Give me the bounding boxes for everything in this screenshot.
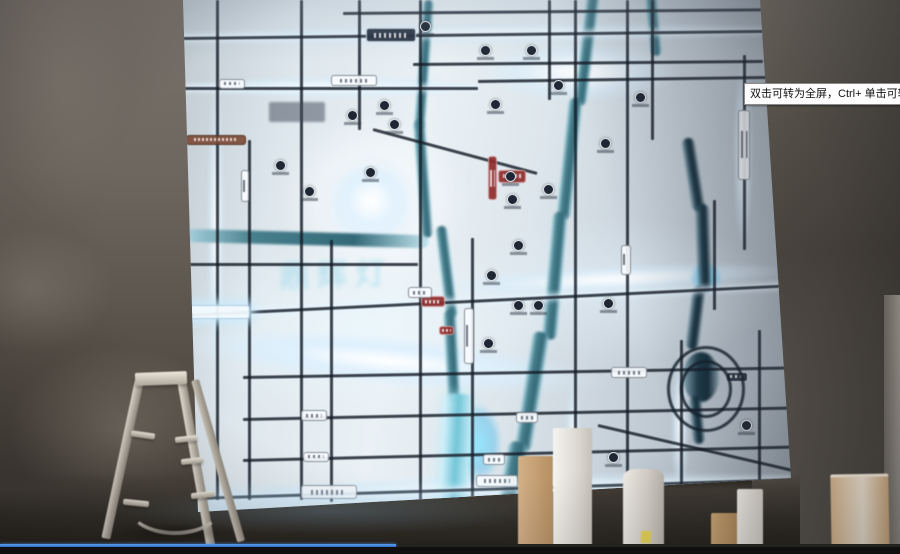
map-poi-marker bbox=[635, 92, 646, 103]
map-poi-marker bbox=[389, 119, 400, 130]
map-poi-marker bbox=[379, 100, 390, 111]
cardboard-box bbox=[518, 456, 553, 554]
map-label-badge bbox=[439, 326, 454, 335]
map-road bbox=[471, 238, 474, 506]
map-poi-marker bbox=[275, 160, 286, 171]
map-features bbox=[183, 0, 791, 515]
map-poi-marker bbox=[507, 194, 518, 205]
map-poi-marker bbox=[600, 138, 611, 149]
map-river bbox=[413, 120, 433, 239]
map-road bbox=[548, 0, 551, 100]
map-poi-marker bbox=[526, 45, 537, 56]
map-poi-marker bbox=[483, 338, 494, 349]
map-road bbox=[358, 0, 361, 130]
map-river bbox=[443, 310, 461, 403]
video-controls-bar bbox=[0, 543, 900, 554]
map-poi-marker bbox=[603, 298, 614, 309]
illuminated-map-panel: 鼎辉灯 bbox=[183, 0, 791, 515]
map-label-badge bbox=[241, 170, 249, 202]
map-road bbox=[343, 8, 763, 14]
map-label-badge bbox=[488, 156, 497, 200]
map-river bbox=[695, 204, 712, 292]
map-road bbox=[373, 128, 538, 174]
map-poi-marker bbox=[365, 167, 376, 178]
video-watermark bbox=[2, 548, 89, 554]
map-label-badge bbox=[186, 135, 246, 145]
map-poi-marker bbox=[533, 300, 544, 311]
map-road bbox=[478, 76, 768, 83]
map-poi-marker bbox=[505, 171, 516, 182]
sticky-note bbox=[641, 531, 652, 544]
map-label-badge bbox=[301, 485, 357, 499]
map-poi-marker bbox=[553, 80, 564, 91]
map-poi-marker bbox=[490, 99, 501, 110]
map-road bbox=[300, 0, 303, 500]
map-road bbox=[330, 240, 333, 502]
map-label-badge bbox=[483, 454, 505, 465]
map-label-badge bbox=[186, 305, 250, 319]
map-road bbox=[758, 330, 761, 500]
map-road bbox=[651, 0, 654, 140]
map-poi-marker bbox=[543, 184, 554, 195]
map-label-badge bbox=[301, 410, 327, 421]
map-poi-marker bbox=[513, 240, 524, 251]
map-poi-marker bbox=[513, 300, 524, 311]
video-bar-strip bbox=[0, 547, 900, 554]
map-road bbox=[713, 200, 716, 310]
map-river bbox=[556, 97, 583, 220]
map-poi-marker bbox=[304, 186, 315, 197]
map-poi-marker bbox=[347, 110, 358, 121]
ladder-rung bbox=[131, 430, 156, 439]
white-column bbox=[553, 428, 592, 554]
map-river bbox=[542, 211, 568, 340]
map-label-badge bbox=[219, 79, 245, 89]
white-round-column bbox=[623, 469, 664, 554]
map-poi-marker bbox=[741, 420, 752, 431]
step-ladder bbox=[101, 366, 241, 548]
video-player: 鼎辉灯 bbox=[0, 0, 900, 554]
fullscreen-tooltip: 双击可转为全屏，Ctrl+ 单击可转为 bbox=[744, 83, 900, 105]
ladder-top-cap bbox=[135, 371, 187, 386]
map-label-badge bbox=[269, 102, 325, 122]
map-river bbox=[681, 137, 705, 212]
map-label-badge bbox=[621, 245, 631, 275]
map-poi-marker bbox=[480, 45, 491, 56]
map-label-badge bbox=[408, 287, 432, 298]
map-label-badge bbox=[738, 110, 750, 180]
map-pond-ring bbox=[680, 360, 732, 418]
map-label-badge bbox=[331, 75, 377, 86]
tan-column bbox=[830, 474, 889, 554]
map-label-badge bbox=[303, 452, 329, 462]
map-poi-marker bbox=[486, 270, 497, 281]
map-label-badge bbox=[464, 308, 474, 364]
map-label-badge bbox=[476, 475, 518, 487]
map-river bbox=[573, 0, 600, 106]
map-glow bbox=[231, 328, 543, 394]
map-poi-marker bbox=[420, 21, 431, 32]
map-label-badge bbox=[611, 367, 647, 378]
map-label-badge bbox=[366, 28, 416, 42]
map-road bbox=[419, 0, 422, 505]
map-poi-marker bbox=[608, 452, 619, 463]
ladder-shadow bbox=[105, 524, 235, 542]
map-river bbox=[514, 331, 550, 452]
map-label-badge bbox=[516, 412, 538, 423]
